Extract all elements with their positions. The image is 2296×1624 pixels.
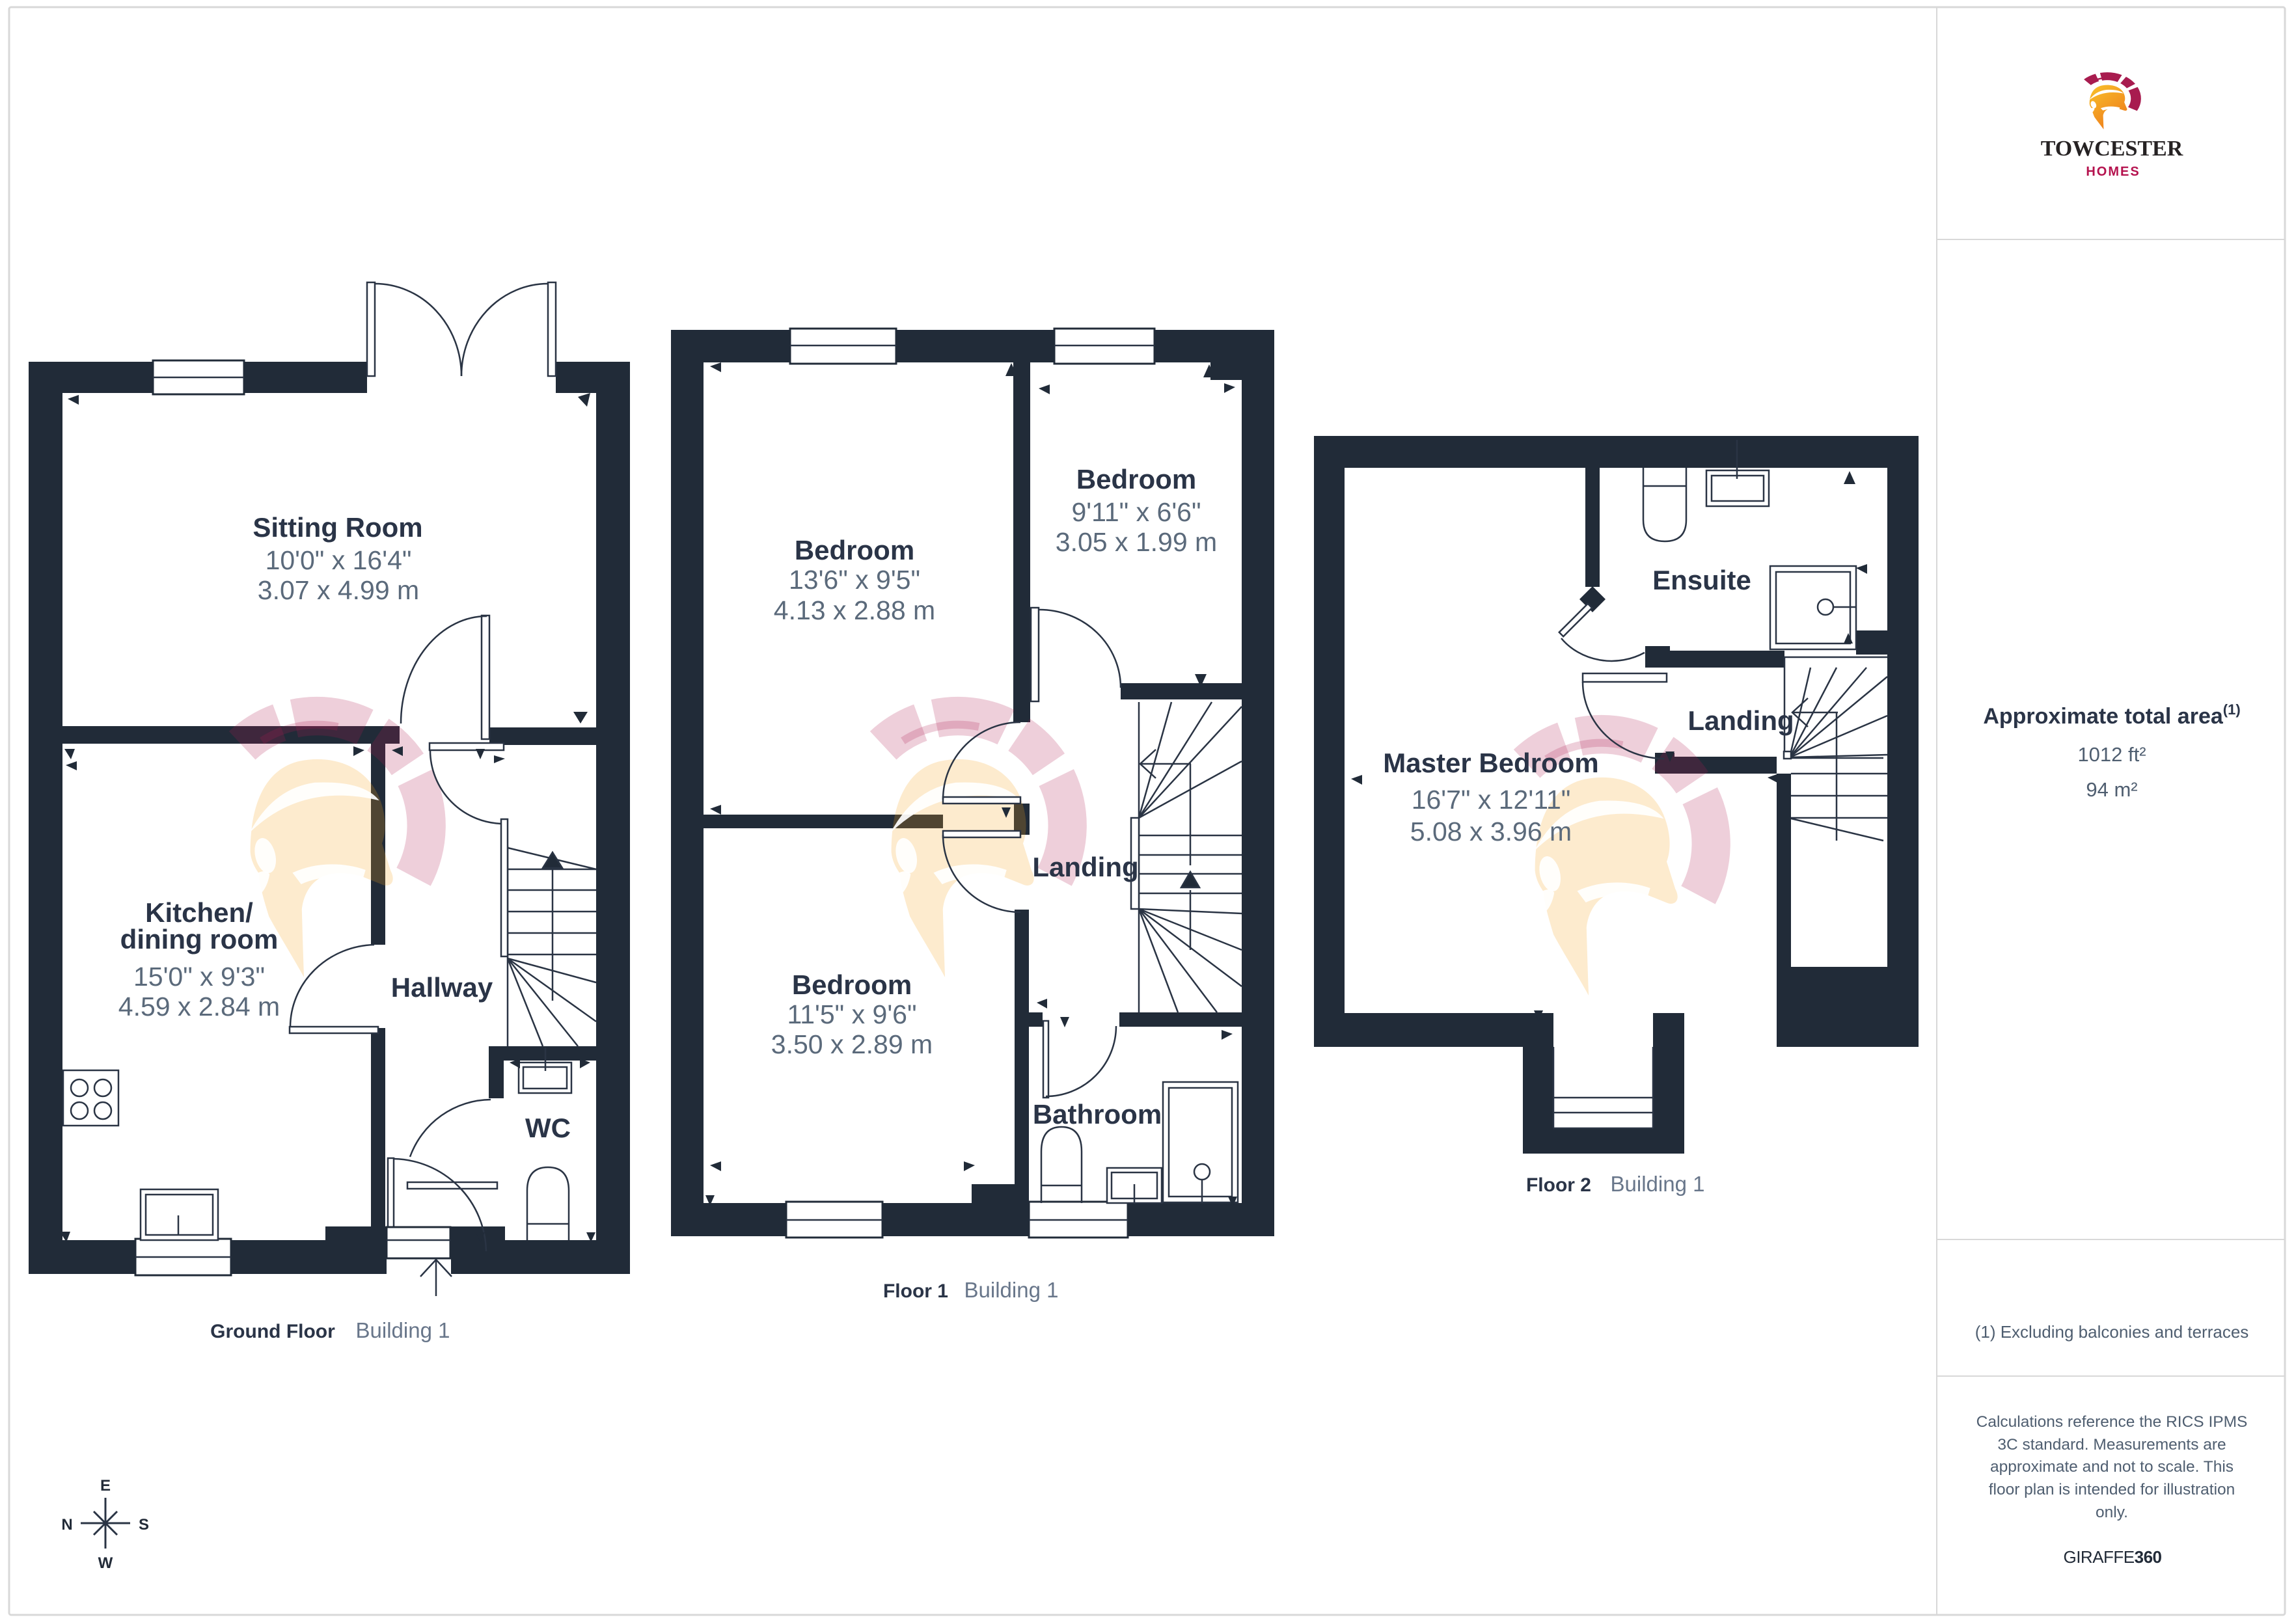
svg-text:Approximate total area(1): Approximate total area(1) bbox=[1983, 701, 2240, 729]
svg-text:Bathroom: Bathroom bbox=[1033, 1099, 1162, 1130]
svg-text:(1) Excluding balconies and te: (1) Excluding balconies and terraces bbox=[1975, 1322, 2249, 1342]
svg-text:Hallway: Hallway bbox=[391, 972, 493, 1003]
svg-text:N: N bbox=[61, 1516, 72, 1534]
svg-text:TOWCESTER: TOWCESTER bbox=[2041, 137, 2183, 161]
svg-text:Building 1: Building 1 bbox=[964, 1278, 1059, 1302]
svg-text:5.08 x 3.96 m: 5.08 x 3.96 m bbox=[1410, 817, 1572, 846]
svg-text:16'7" x 12'11": 16'7" x 12'11" bbox=[1412, 785, 1571, 815]
svg-text:Sitting Room: Sitting Room bbox=[253, 512, 422, 543]
svg-text:HOMES: HOMES bbox=[2086, 165, 2140, 179]
svg-text:4.59 x 2.84 m: 4.59 x 2.84 m bbox=[118, 992, 280, 1022]
svg-text:Ensuite: Ensuite bbox=[1652, 565, 1751, 595]
svg-text:WC: WC bbox=[525, 1113, 571, 1143]
svg-text:dining room: dining room bbox=[120, 924, 279, 954]
svg-text:Building 1: Building 1 bbox=[1611, 1172, 1705, 1196]
svg-text:approximate and not to scale.: approximate and not to scale. This bbox=[1990, 1458, 2234, 1476]
svg-text:floor plan is intended for ill: floor plan is intended for illustration bbox=[1989, 1481, 2235, 1498]
svg-text:11'5" x 9'6": 11'5" x 9'6" bbox=[787, 999, 916, 1029]
svg-text:only.: only. bbox=[2096, 1504, 2128, 1521]
svg-text:4.13 x 2.88 m: 4.13 x 2.88 m bbox=[774, 595, 935, 625]
svg-text:3.50 x 2.89 m: 3.50 x 2.89 m bbox=[771, 1029, 933, 1059]
svg-text:Bedroom: Bedroom bbox=[1076, 464, 1196, 494]
svg-text:Kitchen/: Kitchen/ bbox=[145, 897, 253, 928]
svg-text:Landing: Landing bbox=[1032, 852, 1138, 882]
svg-text:S: S bbox=[139, 1516, 149, 1534]
svg-text:Calculations reference the RIC: Calculations reference the RICS IPMS bbox=[1976, 1413, 2248, 1431]
svg-text:Floor 1: Floor 1 bbox=[883, 1280, 948, 1302]
svg-text:Landing: Landing bbox=[1688, 705, 1794, 736]
svg-text:10'0" x 16'4": 10'0" x 16'4" bbox=[266, 545, 412, 575]
svg-text:15'0" x 9'3": 15'0" x 9'3" bbox=[133, 962, 265, 992]
svg-text:3.07 x 4.99 m: 3.07 x 4.99 m bbox=[258, 575, 419, 605]
svg-text:Bedroom: Bedroom bbox=[792, 969, 912, 1000]
svg-text:94 m²: 94 m² bbox=[2086, 778, 2137, 801]
svg-text:W: W bbox=[98, 1554, 113, 1572]
svg-text:Building 1: Building 1 bbox=[356, 1318, 450, 1342]
svg-text:Ground Floor: Ground Floor bbox=[210, 1321, 335, 1342]
svg-text:E: E bbox=[100, 1477, 111, 1495]
svg-text:1012 ft²: 1012 ft² bbox=[2077, 743, 2146, 766]
svg-text:Bedroom: Bedroom bbox=[795, 535, 914, 565]
svg-text:Master Bedroom: Master Bedroom bbox=[1383, 748, 1598, 778]
svg-text:Floor 2: Floor 2 bbox=[1526, 1174, 1591, 1196]
svg-text:3.05 x 1.99 m: 3.05 x 1.99 m bbox=[1056, 527, 1217, 557]
svg-text:3C standard. Measurements are: 3C standard. Measurements are bbox=[1997, 1436, 2226, 1454]
svg-text:9'11" x 6'6": 9'11" x 6'6" bbox=[1071, 497, 1201, 527]
svg-text:13'6" x 9'5": 13'6" x 9'5" bbox=[789, 565, 920, 595]
svg-text:GIRAFFE360: GIRAFFE360 bbox=[2063, 1547, 2161, 1567]
